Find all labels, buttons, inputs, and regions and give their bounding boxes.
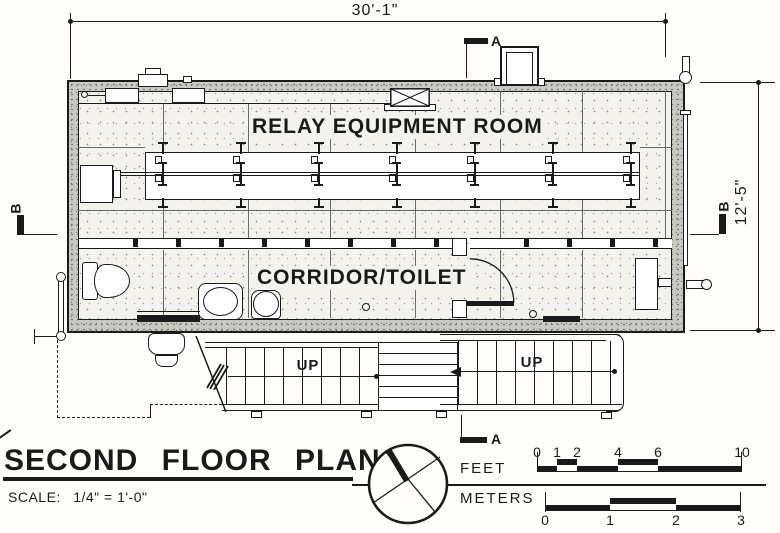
stair-up-label-left: UP <box>294 357 322 374</box>
dim-ext-bottom-right <box>690 330 775 331</box>
column-tick <box>236 206 246 208</box>
feet-bar-segment <box>577 466 618 472</box>
rack-column-symbol <box>232 142 250 210</box>
stair-stringer-top <box>205 342 378 348</box>
window-mullion <box>305 239 310 247</box>
column-tick <box>162 164 163 184</box>
entry-cabinet <box>635 258 658 310</box>
window-mullion <box>610 239 615 247</box>
dim-ext-top-right <box>700 82 775 83</box>
column-tick <box>240 164 241 184</box>
column-tick <box>630 144 631 154</box>
relay-cabinet-step <box>113 170 121 198</box>
chimney-foot <box>538 78 545 86</box>
column-tick <box>240 144 241 154</box>
column-bracket <box>389 174 396 182</box>
landing-line <box>379 386 457 387</box>
column-bracket <box>155 174 162 182</box>
column-tick <box>548 206 558 208</box>
feet-tick-number: 4 <box>608 444 628 460</box>
window-mullion <box>176 239 181 247</box>
shelf-equipment-box <box>172 88 205 103</box>
window-mullion <box>524 239 529 247</box>
meters-tick-number: 3 <box>731 512 751 528</box>
stair-tread <box>378 348 379 404</box>
window-mullion <box>434 239 439 247</box>
scale-value: 1/4" = 1'-0" <box>73 489 147 505</box>
dim-line-right <box>758 82 759 330</box>
column-tick <box>474 198 475 206</box>
column-bracket <box>545 174 552 182</box>
column-tick <box>318 198 319 206</box>
rack-column-symbol <box>154 142 172 210</box>
column-tick <box>552 164 553 184</box>
column-tick <box>318 164 319 184</box>
door-stop <box>529 310 537 318</box>
scale-label: SCALE: <box>8 489 61 505</box>
window-mullion <box>262 239 267 247</box>
north-arrow-compass-icon <box>366 442 450 526</box>
column-tick <box>162 198 163 206</box>
column-bracket <box>311 174 318 182</box>
stair-foot <box>436 411 447 418</box>
column-tick <box>240 198 241 206</box>
page-title: SECOND FLOOR PLAN <box>4 444 381 478</box>
window-mullion <box>348 239 353 247</box>
door-jamb <box>452 238 467 256</box>
stair-tread <box>321 348 322 404</box>
rack-column-symbol <box>544 142 562 210</box>
room-label-relay: RELAY EQUIPMENT ROOM <box>250 115 545 139</box>
window-mullion <box>391 239 396 247</box>
downspout-line <box>34 336 56 337</box>
stair-foot <box>361 411 372 418</box>
stray-mark <box>0 429 11 438</box>
rack-column-symbol <box>310 142 328 210</box>
feet-bar-baseline <box>618 471 658 472</box>
dim-label-width: 30'-1" <box>335 2 415 20</box>
stair-tread <box>283 348 284 404</box>
section-a-bottom-line <box>461 415 462 439</box>
column-tick <box>630 198 631 206</box>
floor-joint <box>248 250 249 318</box>
feet-bar-baseline <box>557 471 577 472</box>
column-bracket <box>623 174 630 182</box>
feet-bar-segment-raised <box>557 459 577 465</box>
divider-line <box>448 484 766 486</box>
stair-tread <box>477 341 478 404</box>
section-a-top-line <box>466 44 467 78</box>
stair-direction-dot <box>612 369 617 374</box>
stair-tread <box>572 341 573 404</box>
shelf-wire <box>88 95 105 96</box>
column-tick <box>474 144 475 154</box>
section-b-right-label: B <box>716 200 732 211</box>
section-b-left-line <box>24 234 57 235</box>
feet-bar-segment-raised <box>618 459 658 465</box>
wall-louver-x-box <box>390 88 430 107</box>
stair-stringer-bottom <box>440 404 622 411</box>
meters-tick-number: 1 <box>600 512 620 528</box>
title-underline <box>3 477 353 481</box>
stair-tread <box>610 341 611 404</box>
meters-tick-number: 2 <box>666 512 686 528</box>
feet-scale-label: FEET <box>460 460 506 477</box>
feet-tick-number: 1 <box>547 444 567 460</box>
stair-tread <box>264 348 265 404</box>
column-tick <box>548 184 557 186</box>
blower-base <box>155 355 178 367</box>
floor-joint <box>163 250 164 318</box>
column-bracket <box>467 174 474 182</box>
roof-vent-base <box>138 74 168 87</box>
stair-break-arrow <box>204 360 232 390</box>
dashed-outline-h <box>57 417 150 418</box>
column-tick <box>314 184 323 186</box>
dim-dot <box>68 19 73 24</box>
feet-tick-number: 6 <box>648 444 668 460</box>
stair-stringer-top <box>440 334 622 341</box>
roof-fitting <box>183 76 192 83</box>
meters-bar-segment <box>676 505 741 511</box>
room-label-corridor: CORRIDOR/TOILET <box>255 266 468 290</box>
landing-line <box>379 397 457 398</box>
landing-line <box>379 353 457 354</box>
dim-dot <box>663 19 668 24</box>
meters-bar-segment-raised <box>610 498 676 504</box>
section-b-left-bar <box>17 215 24 235</box>
window-mullion <box>219 239 224 247</box>
stair-tread <box>553 341 554 404</box>
sink-round-basin <box>253 291 279 317</box>
left-pipe-top <box>56 272 66 282</box>
section-a-bottom-bar <box>460 437 487 443</box>
meters-bar-baseline <box>610 510 676 511</box>
door-jamb <box>452 300 467 318</box>
stair-tread <box>515 341 516 404</box>
rack-column-symbol <box>388 142 406 210</box>
downspout-tick <box>34 329 35 344</box>
scale-note: SCALE: 1/4" = 1'-0" <box>8 489 147 505</box>
roof-vent-cap <box>145 68 161 75</box>
right-wall-conduit <box>683 114 688 266</box>
rack-extension-line <box>121 172 145 176</box>
column-tick <box>552 198 553 206</box>
section-b-left-label: B <box>8 202 24 213</box>
column-tick <box>314 206 324 208</box>
sliding-door-track <box>137 311 200 312</box>
stair-tread <box>340 348 341 404</box>
column-tick <box>392 184 401 186</box>
floor-joint <box>582 250 583 318</box>
chimney-inner <box>506 52 533 86</box>
window-mullion <box>133 239 138 247</box>
stair-direction-line <box>460 371 616 372</box>
stair-tread <box>302 348 303 404</box>
meters-scale-label: METERS <box>460 490 535 507</box>
blower-unit <box>148 333 185 355</box>
floor-joint <box>640 147 672 148</box>
column-tick <box>392 206 402 208</box>
shelf-fitting-circle <box>81 91 88 98</box>
column-tick <box>552 144 553 154</box>
entry-threshold <box>543 316 580 322</box>
column-bracket <box>233 174 240 182</box>
column-tick <box>474 164 475 184</box>
sliding-door-threshold <box>137 315 200 322</box>
dashed-outline-v <box>57 340 58 418</box>
dim-line-top <box>70 21 665 22</box>
left-wall-pipe <box>58 279 64 333</box>
stair-tread <box>534 341 535 404</box>
section-b-right-line <box>690 234 719 235</box>
column-tick <box>396 164 397 184</box>
feet-tick-number: 2 <box>567 444 587 460</box>
column-tick <box>162 144 163 154</box>
stair-tread <box>245 348 246 404</box>
column-tick <box>626 206 636 208</box>
entry-cabinet-tick <box>658 278 672 287</box>
rack-column-symbol <box>466 142 484 210</box>
column-tick <box>318 144 319 154</box>
dashed-step <box>150 404 151 418</box>
column-tick <box>158 206 168 208</box>
meters-bar-segment <box>545 505 610 511</box>
stair-foot <box>251 411 262 418</box>
landing-line <box>379 375 457 376</box>
window-mullion <box>567 239 572 247</box>
right-conduit-cap <box>680 110 691 115</box>
sink-basin <box>203 287 238 316</box>
floor-plan-drawing: 30'-1" 12'-5" A A B B <box>0 0 780 533</box>
wall-shelf-line <box>78 103 415 104</box>
stair-tread <box>591 341 592 404</box>
column-tick <box>470 184 479 186</box>
section-b-right-bar <box>719 214 726 234</box>
column-tick <box>396 198 397 206</box>
dim-label-depth: 12'-5" <box>733 167 751 237</box>
floor-joint <box>78 147 145 148</box>
relay-cabinet-left <box>80 165 113 203</box>
stair-tread <box>359 348 360 404</box>
door-swing-arc <box>469 258 515 304</box>
window-mullion <box>653 239 658 247</box>
stair-tread <box>496 341 497 404</box>
section-a-bottom-label: A <box>491 431 502 447</box>
shelf-equipment-box <box>105 88 139 103</box>
stair-foot <box>601 412 612 419</box>
dim-dot <box>756 80 761 85</box>
chimney-foot <box>494 78 501 86</box>
landing-line <box>379 364 457 365</box>
section-a-top-bar <box>464 38 488 44</box>
column-tick <box>626 184 635 186</box>
stair-up-label-right: UP <box>518 354 546 371</box>
door-stop <box>362 303 370 311</box>
floor-joint <box>665 91 666 238</box>
roof-pipe-elbow <box>679 71 692 84</box>
floor-joint <box>78 210 672 211</box>
column-tick <box>396 144 397 154</box>
feet-bar-segment <box>537 466 557 472</box>
column-tick <box>470 206 480 208</box>
column-tick <box>158 184 167 186</box>
feet-bar-segment <box>658 466 742 472</box>
meters-tick-number: 0 <box>535 512 555 528</box>
column-tick <box>630 164 631 184</box>
right-pipe-end <box>701 279 712 290</box>
column-tick <box>236 184 245 186</box>
dim-dot <box>756 328 761 333</box>
rack-column-symbol <box>622 142 640 210</box>
